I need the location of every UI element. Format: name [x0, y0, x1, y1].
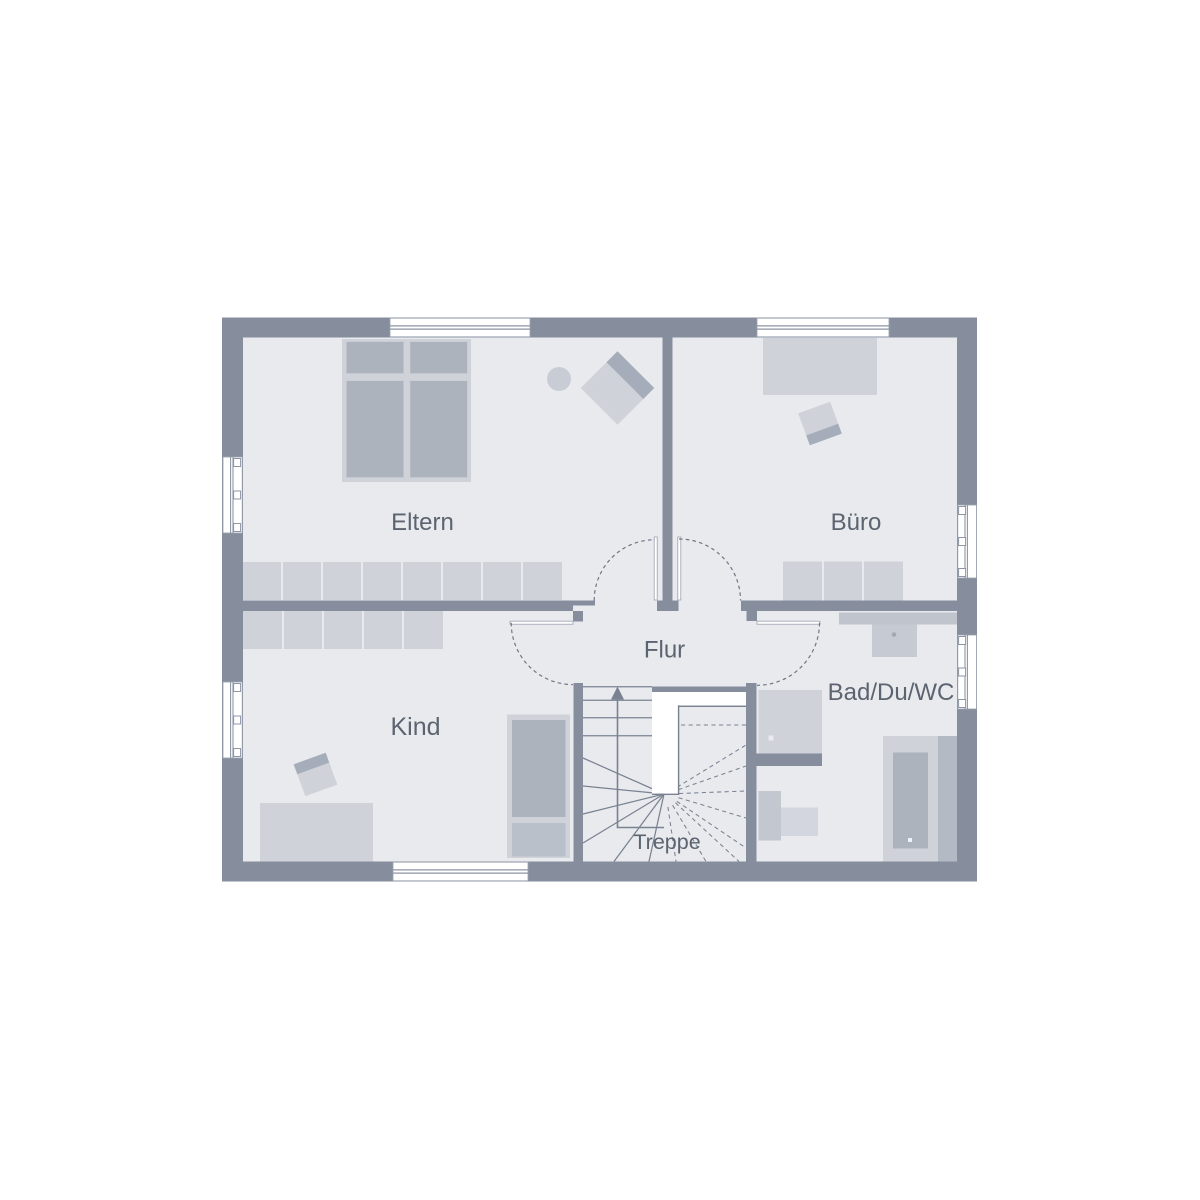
- svg-text:Treppe: Treppe: [633, 830, 700, 854]
- svg-text:Kind: Kind: [390, 713, 440, 741]
- svg-text:Eltern: Eltern: [391, 509, 454, 536]
- svg-text:Bad/Du/WC: Bad/Du/WC: [828, 679, 955, 706]
- svg-text:Flur: Flur: [644, 637, 685, 664]
- svg-text:Büro: Büro: [831, 509, 882, 536]
